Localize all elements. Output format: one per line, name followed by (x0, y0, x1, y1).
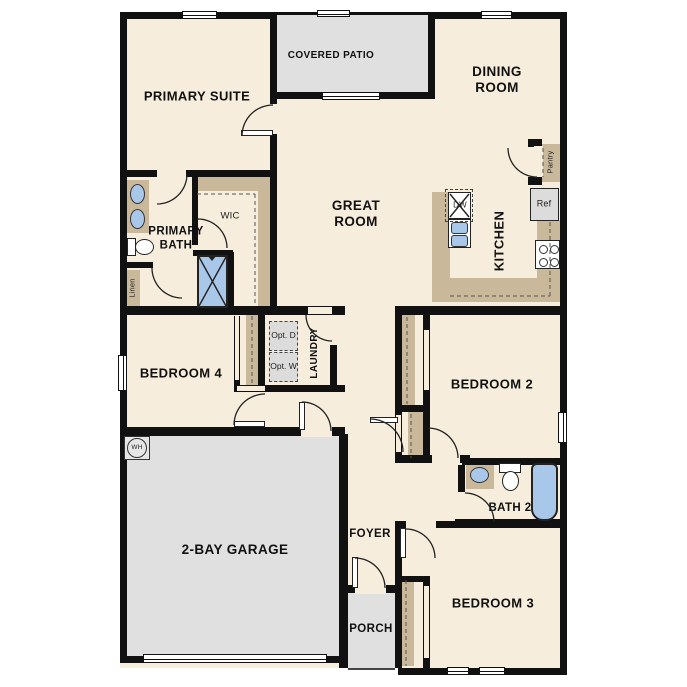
room-label-bath-2: BATH 2 (482, 502, 538, 516)
room-label-great-room: GREAT ROOM (310, 198, 402, 230)
fixture-label-wh: WH (131, 444, 142, 452)
stove (535, 240, 560, 269)
floor-plan: PRIMARY SUITE COVERED PATIO DINING ROOM … (0, 0, 687, 687)
bath-sink (470, 467, 489, 483)
door-opening (355, 584, 386, 594)
window-glass-line (323, 96, 379, 97)
optional-washer-label: Opt. W (270, 362, 296, 372)
bedroom4-door-opening (237, 385, 265, 392)
stove-burner (539, 258, 548, 267)
wall (332, 306, 345, 315)
wall (380, 92, 432, 99)
door-opening (301, 426, 332, 437)
wall (423, 390, 430, 462)
kitchen-sink-bowl (451, 222, 468, 234)
wic-shelf-top (193, 177, 272, 191)
window-glass-line (448, 671, 468, 672)
door-opening (534, 146, 543, 177)
kitchen-sink-bowl (451, 235, 468, 247)
fixture-label-linen: Linen (129, 278, 138, 297)
door-leaf (370, 417, 398, 423)
wall (273, 12, 319, 15)
room-label-primary-suite: PRIMARY SUITE (142, 88, 252, 103)
wall (120, 434, 127, 663)
wall (217, 12, 277, 19)
wall (398, 668, 448, 675)
room-label-foyer: FOYER (330, 528, 410, 542)
wall (505, 668, 567, 675)
bedroom2-closet-shelf (400, 315, 415, 405)
window-glass-line (183, 15, 216, 16)
bedroom4-closet-shelf (246, 313, 258, 386)
wall (228, 252, 234, 310)
window-glass-line (482, 15, 511, 16)
optional-dryer-box: Opt. D (269, 321, 298, 351)
wall (428, 12, 482, 19)
room-label-bedroom-4: BEDROOM 4 (116, 365, 246, 380)
door-opening (406, 520, 436, 529)
room-label-laundry: LAUNDRY (309, 327, 321, 378)
stove-burner (539, 245, 548, 254)
window-glass-line (563, 413, 564, 442)
wall (395, 455, 432, 463)
fixture-label-dw: DW (452, 200, 468, 209)
wall (395, 521, 406, 528)
room-label-wic: WIC (220, 210, 239, 221)
fixture-label-ref: Ref (537, 199, 552, 210)
wall (469, 668, 479, 675)
room-label-primary-bath: PRIMARY BATH (133, 225, 219, 252)
window-glass-line (318, 14, 349, 15)
wall (423, 315, 430, 330)
kitchen-counter-right (537, 220, 560, 240)
optional-dryer-label: Opt. D (271, 331, 296, 341)
door-leaf (299, 402, 305, 430)
window (447, 667, 469, 675)
kitchen-counter-run (432, 278, 560, 302)
wall (273, 92, 322, 99)
laundry-door-opening (308, 306, 332, 315)
door-opening (457, 492, 466, 519)
door-opening (432, 454, 460, 464)
wall (458, 465, 465, 492)
wall (120, 12, 127, 356)
room-label-dining-room: DINING ROOM (451, 64, 543, 96)
room-label-bedroom-3: BEDROOM 3 (428, 595, 558, 610)
window-glass-line (480, 671, 504, 672)
wall (395, 405, 430, 412)
bedroom3-closet-shelf (402, 578, 414, 666)
wall (120, 427, 302, 436)
window-glass-line (144, 659, 326, 660)
wall (455, 519, 567, 528)
wall (120, 170, 157, 177)
wall (258, 306, 265, 392)
wall (423, 658, 430, 668)
window (481, 11, 512, 19)
door-leaf (241, 130, 273, 136)
wall (512, 12, 567, 19)
wall (386, 585, 398, 593)
window (558, 412, 567, 443)
wall (270, 12, 277, 105)
toilet-bowl (502, 471, 519, 491)
room-label-kitchen: KITCHEN (491, 211, 506, 272)
door-leaf (352, 557, 358, 588)
wall (395, 306, 567, 315)
room-label-bedroom-2: BEDROOM 2 (427, 376, 557, 391)
wall (436, 521, 461, 528)
wall (428, 15, 435, 99)
room-label-porch: PORCH (331, 623, 411, 637)
wall (120, 262, 153, 268)
bath-sink (130, 184, 145, 204)
door-opening (157, 169, 186, 178)
garage-door (143, 654, 327, 663)
wall (120, 656, 144, 663)
wall (423, 576, 430, 586)
wall (186, 170, 277, 177)
patio-opening (317, 10, 350, 17)
wall (265, 385, 345, 392)
kitchen-counter-below-stove (537, 269, 560, 280)
wall (528, 177, 542, 185)
wall (560, 528, 567, 675)
room-label-garage: 2-BAY GARAGE (180, 542, 290, 558)
stove-burner (550, 245, 559, 254)
wall (120, 12, 183, 19)
hall-closet-shelf (408, 412, 423, 460)
wall (395, 315, 402, 415)
shower (197, 255, 228, 308)
wall (560, 12, 567, 528)
stove-burner (550, 258, 559, 267)
wall (270, 133, 277, 310)
room-label-covered-patio: COVERED PATIO (285, 50, 377, 62)
door-leaf (234, 421, 265, 427)
wall (350, 12, 432, 15)
window (182, 11, 217, 19)
sliding-glass-door (322, 92, 380, 100)
optional-washer-box: Opt. W (269, 352, 298, 382)
fixture-label-pantry: Pantry (547, 151, 556, 174)
window (479, 667, 505, 675)
